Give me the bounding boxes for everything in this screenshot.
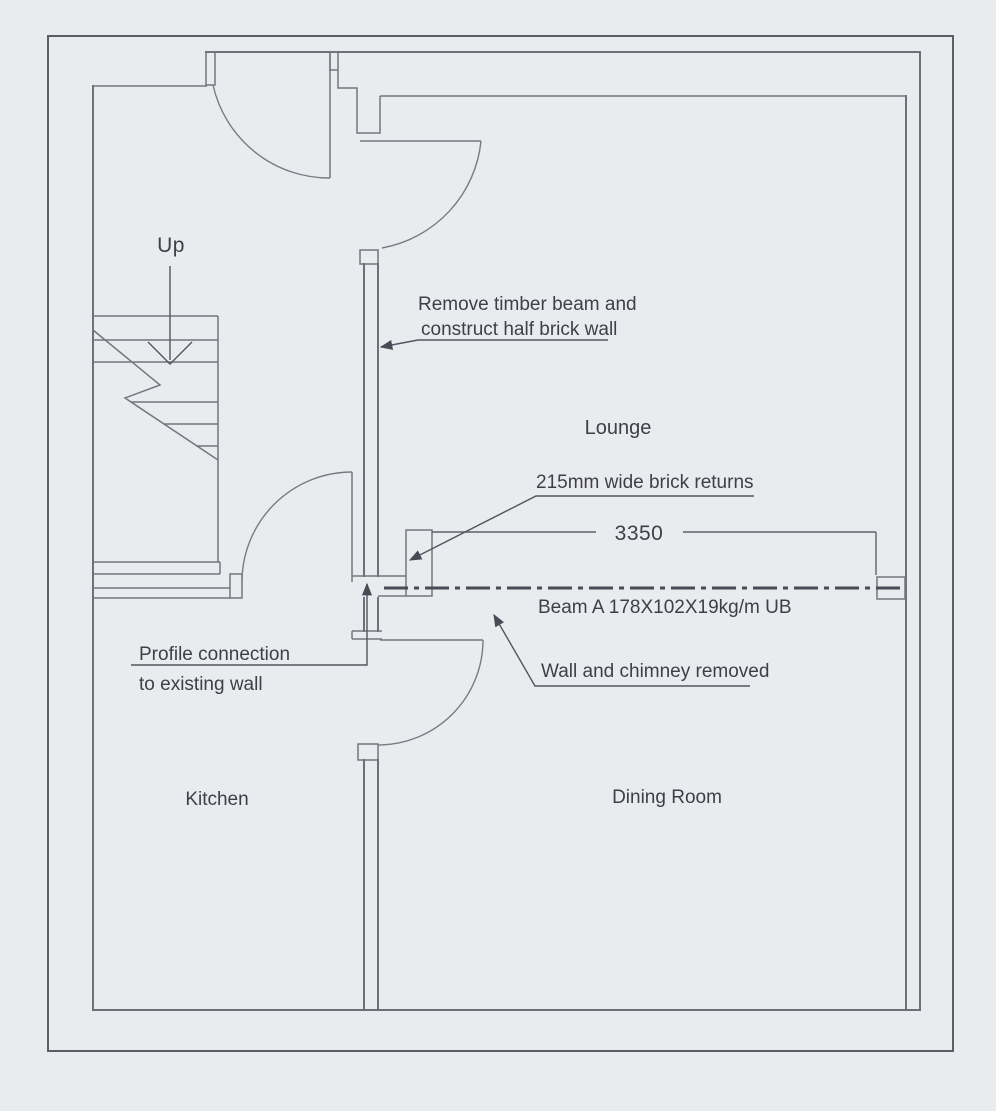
floor-plan-drawing: 3350 Up Remove timber beam an xyxy=(0,0,996,1111)
annotation-leaders xyxy=(131,340,754,686)
note-profile-connection-line1: Profile connection xyxy=(139,644,290,665)
floor-plan-page: 3350 Up Remove timber beam an xyxy=(0,0,996,1111)
kitchen-door-swing-arc xyxy=(242,472,352,582)
front-door-swing-arc xyxy=(213,85,330,178)
room-label-lounge: Lounge xyxy=(585,417,652,439)
leader-brick-returns xyxy=(410,496,754,560)
up-arrow xyxy=(148,266,192,364)
stairs-up-label: Up xyxy=(157,234,185,257)
exterior-walls xyxy=(93,52,920,1010)
note-brick-returns: 215mm wide brick returns xyxy=(536,472,754,493)
kitchen-door xyxy=(242,472,352,582)
note-wall-removed: Wall and chimney removed xyxy=(541,661,769,682)
brick-return-left xyxy=(406,530,432,596)
room-label-dining-room: Dining Room xyxy=(612,787,722,808)
dining-door-swing-arc xyxy=(378,640,483,745)
front-door xyxy=(206,52,380,178)
room-label-kitchen: Kitchen xyxy=(185,789,248,810)
dimension-label: 3350 xyxy=(615,522,664,545)
note-profile-connection-line2: to existing wall xyxy=(139,674,263,695)
note-remove-beam-line2: construct half brick wall xyxy=(421,319,617,340)
note-beam-spec: Beam A 178X102X19kg/m UB xyxy=(538,597,792,618)
hall-kitchen-wall xyxy=(93,562,242,598)
chimney-breast-detail xyxy=(338,70,380,133)
lounge-door xyxy=(360,141,481,248)
note-remove-beam-line1: Remove timber beam and xyxy=(418,294,637,315)
hall-lounge-wall xyxy=(360,250,378,576)
dimension-3350: 3350 xyxy=(432,522,876,575)
leader-remove-beam xyxy=(381,340,608,347)
sheet-border xyxy=(48,36,953,1051)
lounge-door-swing-arc xyxy=(382,141,481,248)
dining-door xyxy=(378,640,483,745)
stairs xyxy=(93,266,218,562)
